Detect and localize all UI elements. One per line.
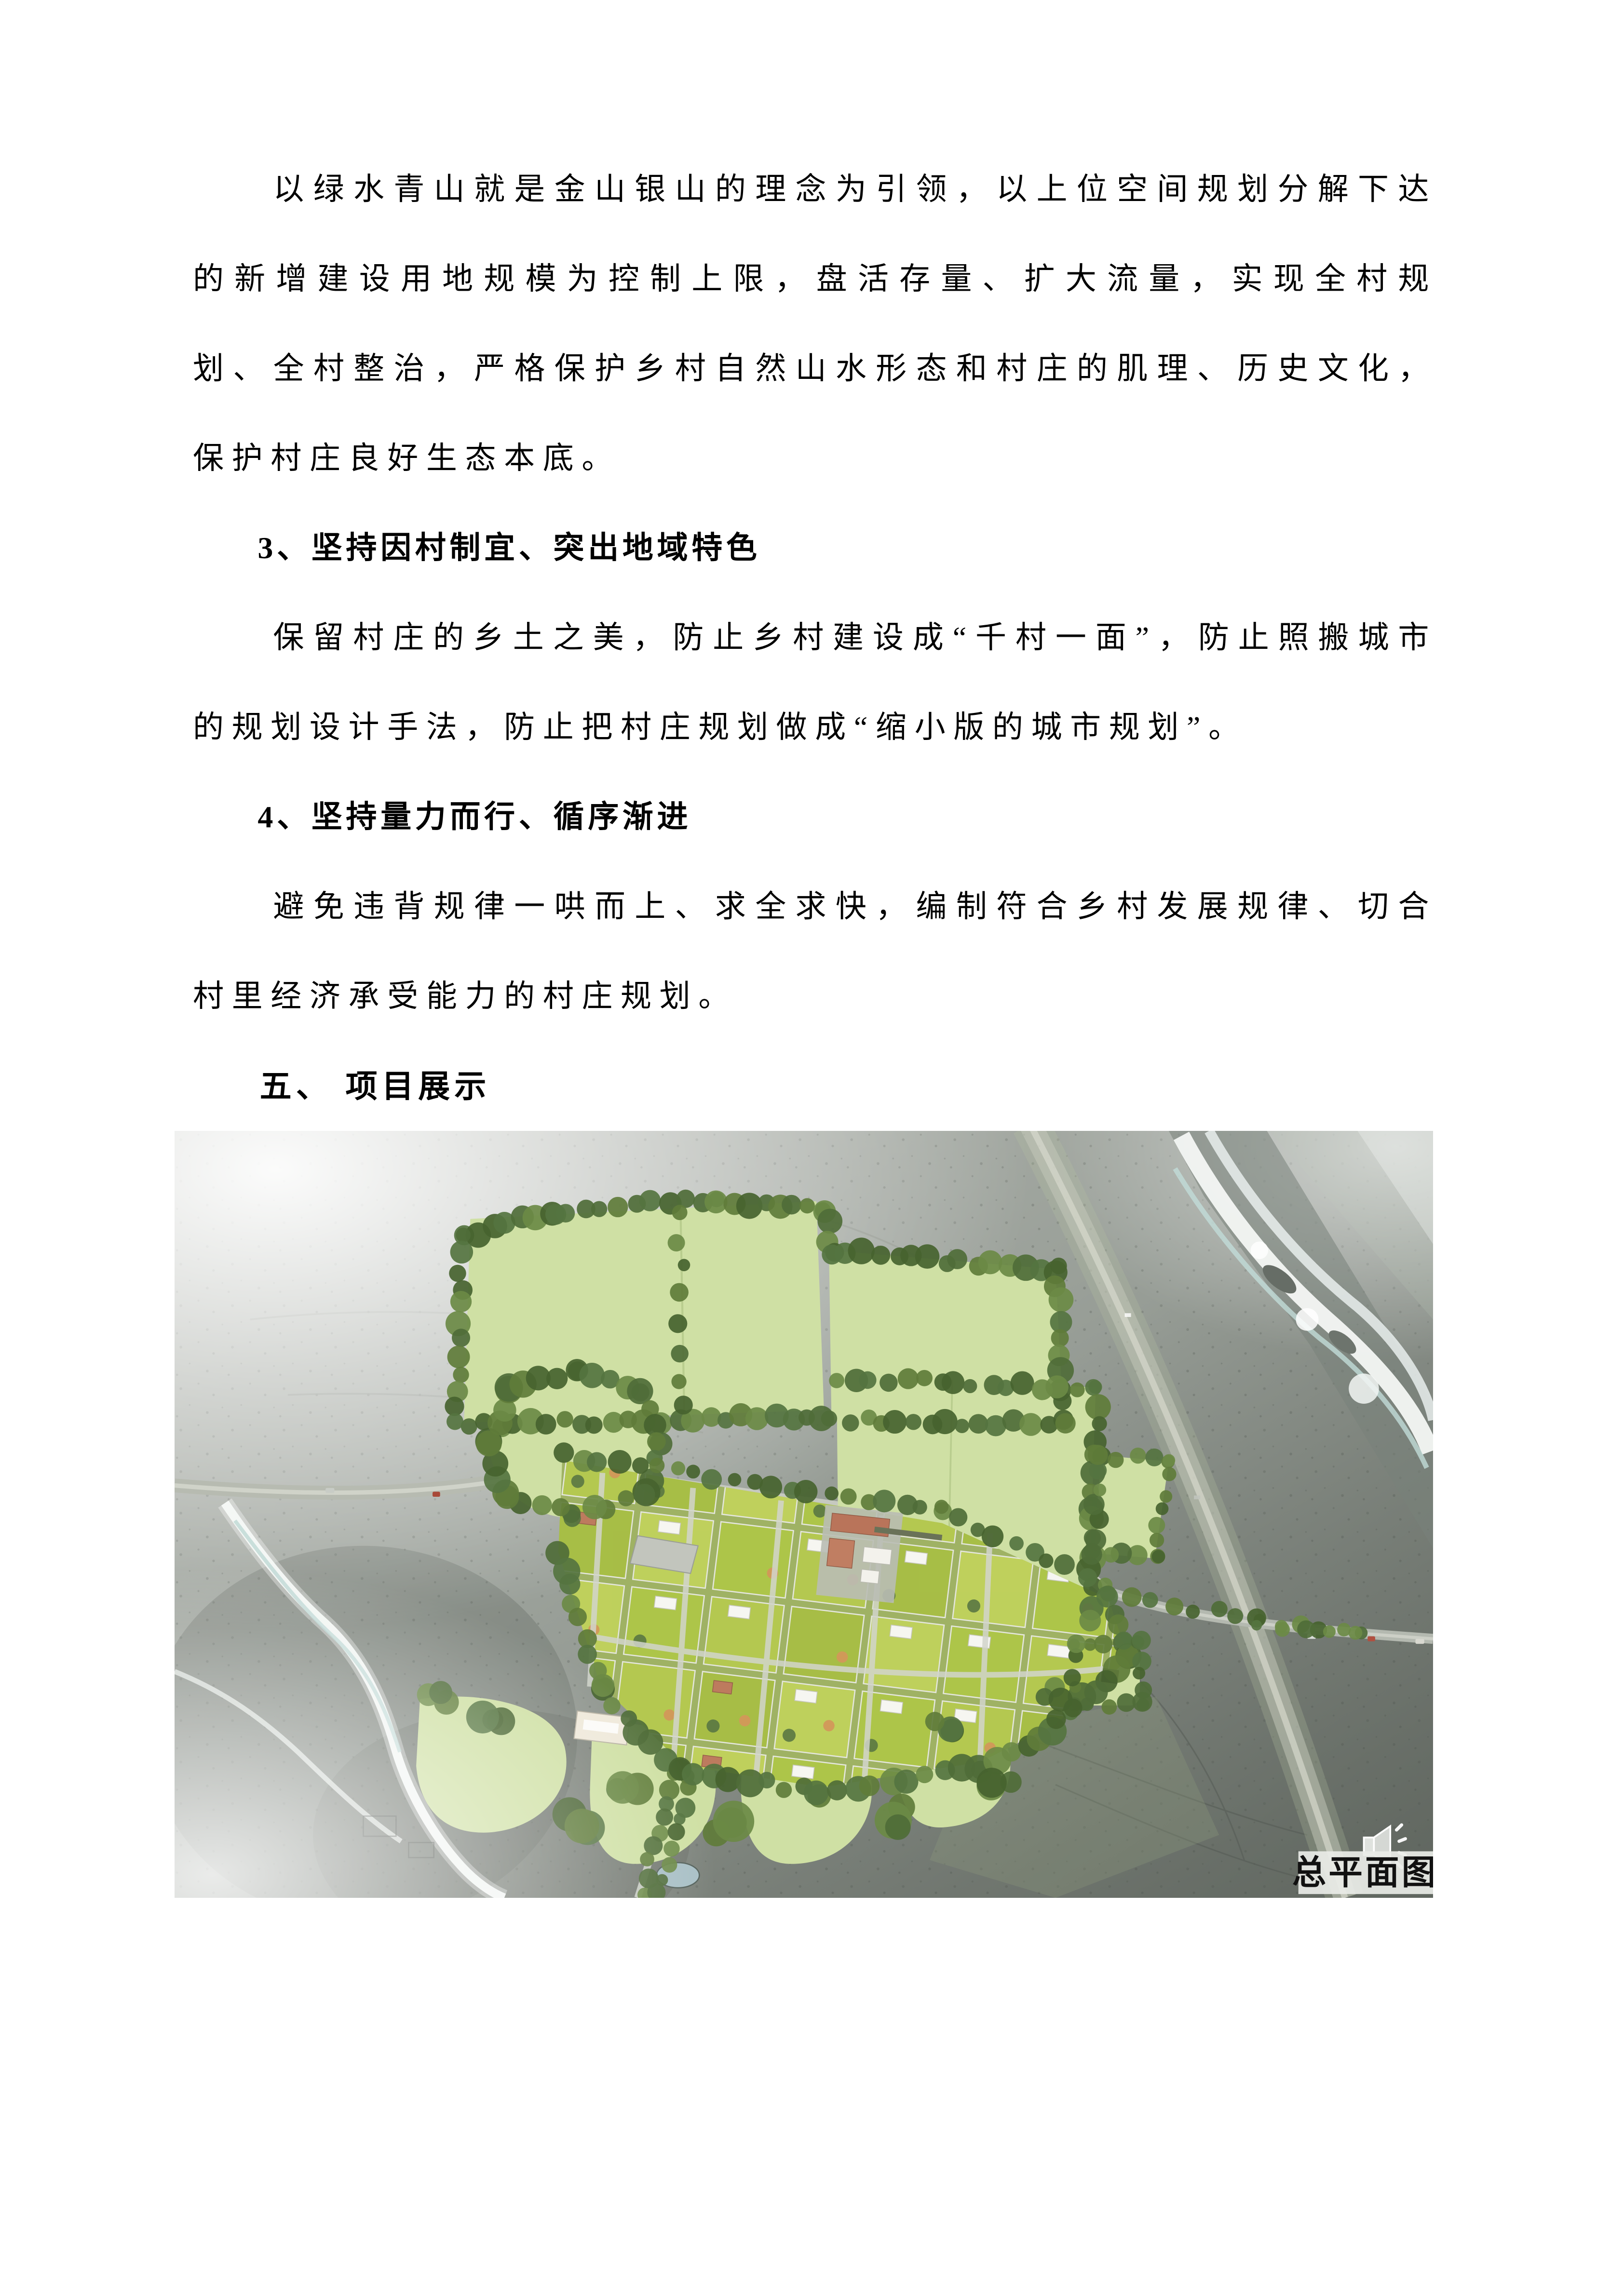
paragraph-ecology: 以绿水青山就是金山银山的理念为引领，以上位空间规划分解下达的新增建设用地规模为控…	[193, 145, 1437, 503]
master-plan-svg: 总平面图	[175, 1131, 1433, 1898]
document-page: 以绿水青山就是金山银山的理念为引领，以上位空间规划分解下达的新增建设用地规模为控…	[0, 0, 1624, 2296]
heading-section-3: 3、坚持因村制宜、突出地域特色	[193, 503, 1437, 593]
heading-section-4: 4、坚持量力而行、循序渐进	[193, 772, 1437, 862]
paragraph-section-3: 保留村庄的乡土之美，防止乡村建设成“千村一面”，防止照搬城市的规划设计手法，防止…	[193, 593, 1437, 772]
fog-bottom-left	[175, 1131, 1433, 1898]
heading-section-5: 五、 项目展示	[193, 1041, 1437, 1131]
paragraph-section-4: 避免违背规律一哄而上、求全求快，编制符合乡村发展规律、切合村里经济承受能力的村庄…	[193, 862, 1437, 1041]
plan-caption: 总平面图	[1292, 1851, 1433, 1894]
plan-caption-label: 总平面图	[1292, 1853, 1433, 1891]
document-body: 以绿水青山就是金山银山的理念为引领，以上位空间规划分解下达的新增建设用地规模为控…	[193, 145, 1437, 1898]
master-plan-figure: 总平面图	[175, 1131, 1433, 1898]
